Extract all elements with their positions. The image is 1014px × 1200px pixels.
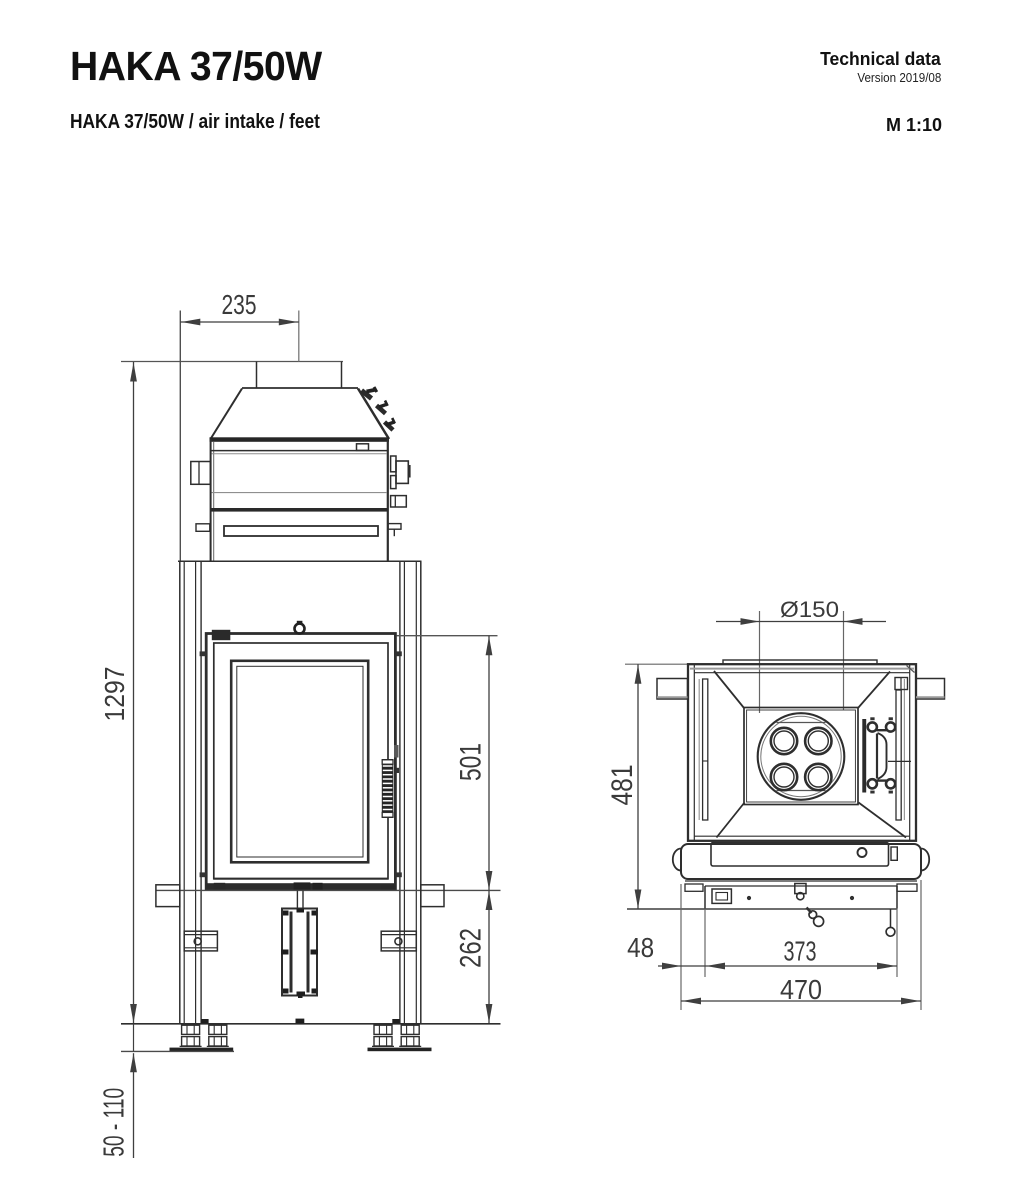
svg-text:501: 501: [454, 743, 487, 781]
svg-text:470: 470: [780, 974, 822, 1005]
svg-text:50 - 110: 50 - 110: [99, 1088, 131, 1157]
svg-text:373: 373: [784, 935, 817, 966]
svg-text:235: 235: [222, 289, 257, 320]
svg-text:481: 481: [606, 765, 639, 806]
svg-text:Ø150: Ø150: [780, 597, 839, 622]
svg-text:1297: 1297: [99, 667, 130, 722]
svg-text:262: 262: [454, 928, 487, 968]
svg-text:48: 48: [627, 932, 654, 963]
